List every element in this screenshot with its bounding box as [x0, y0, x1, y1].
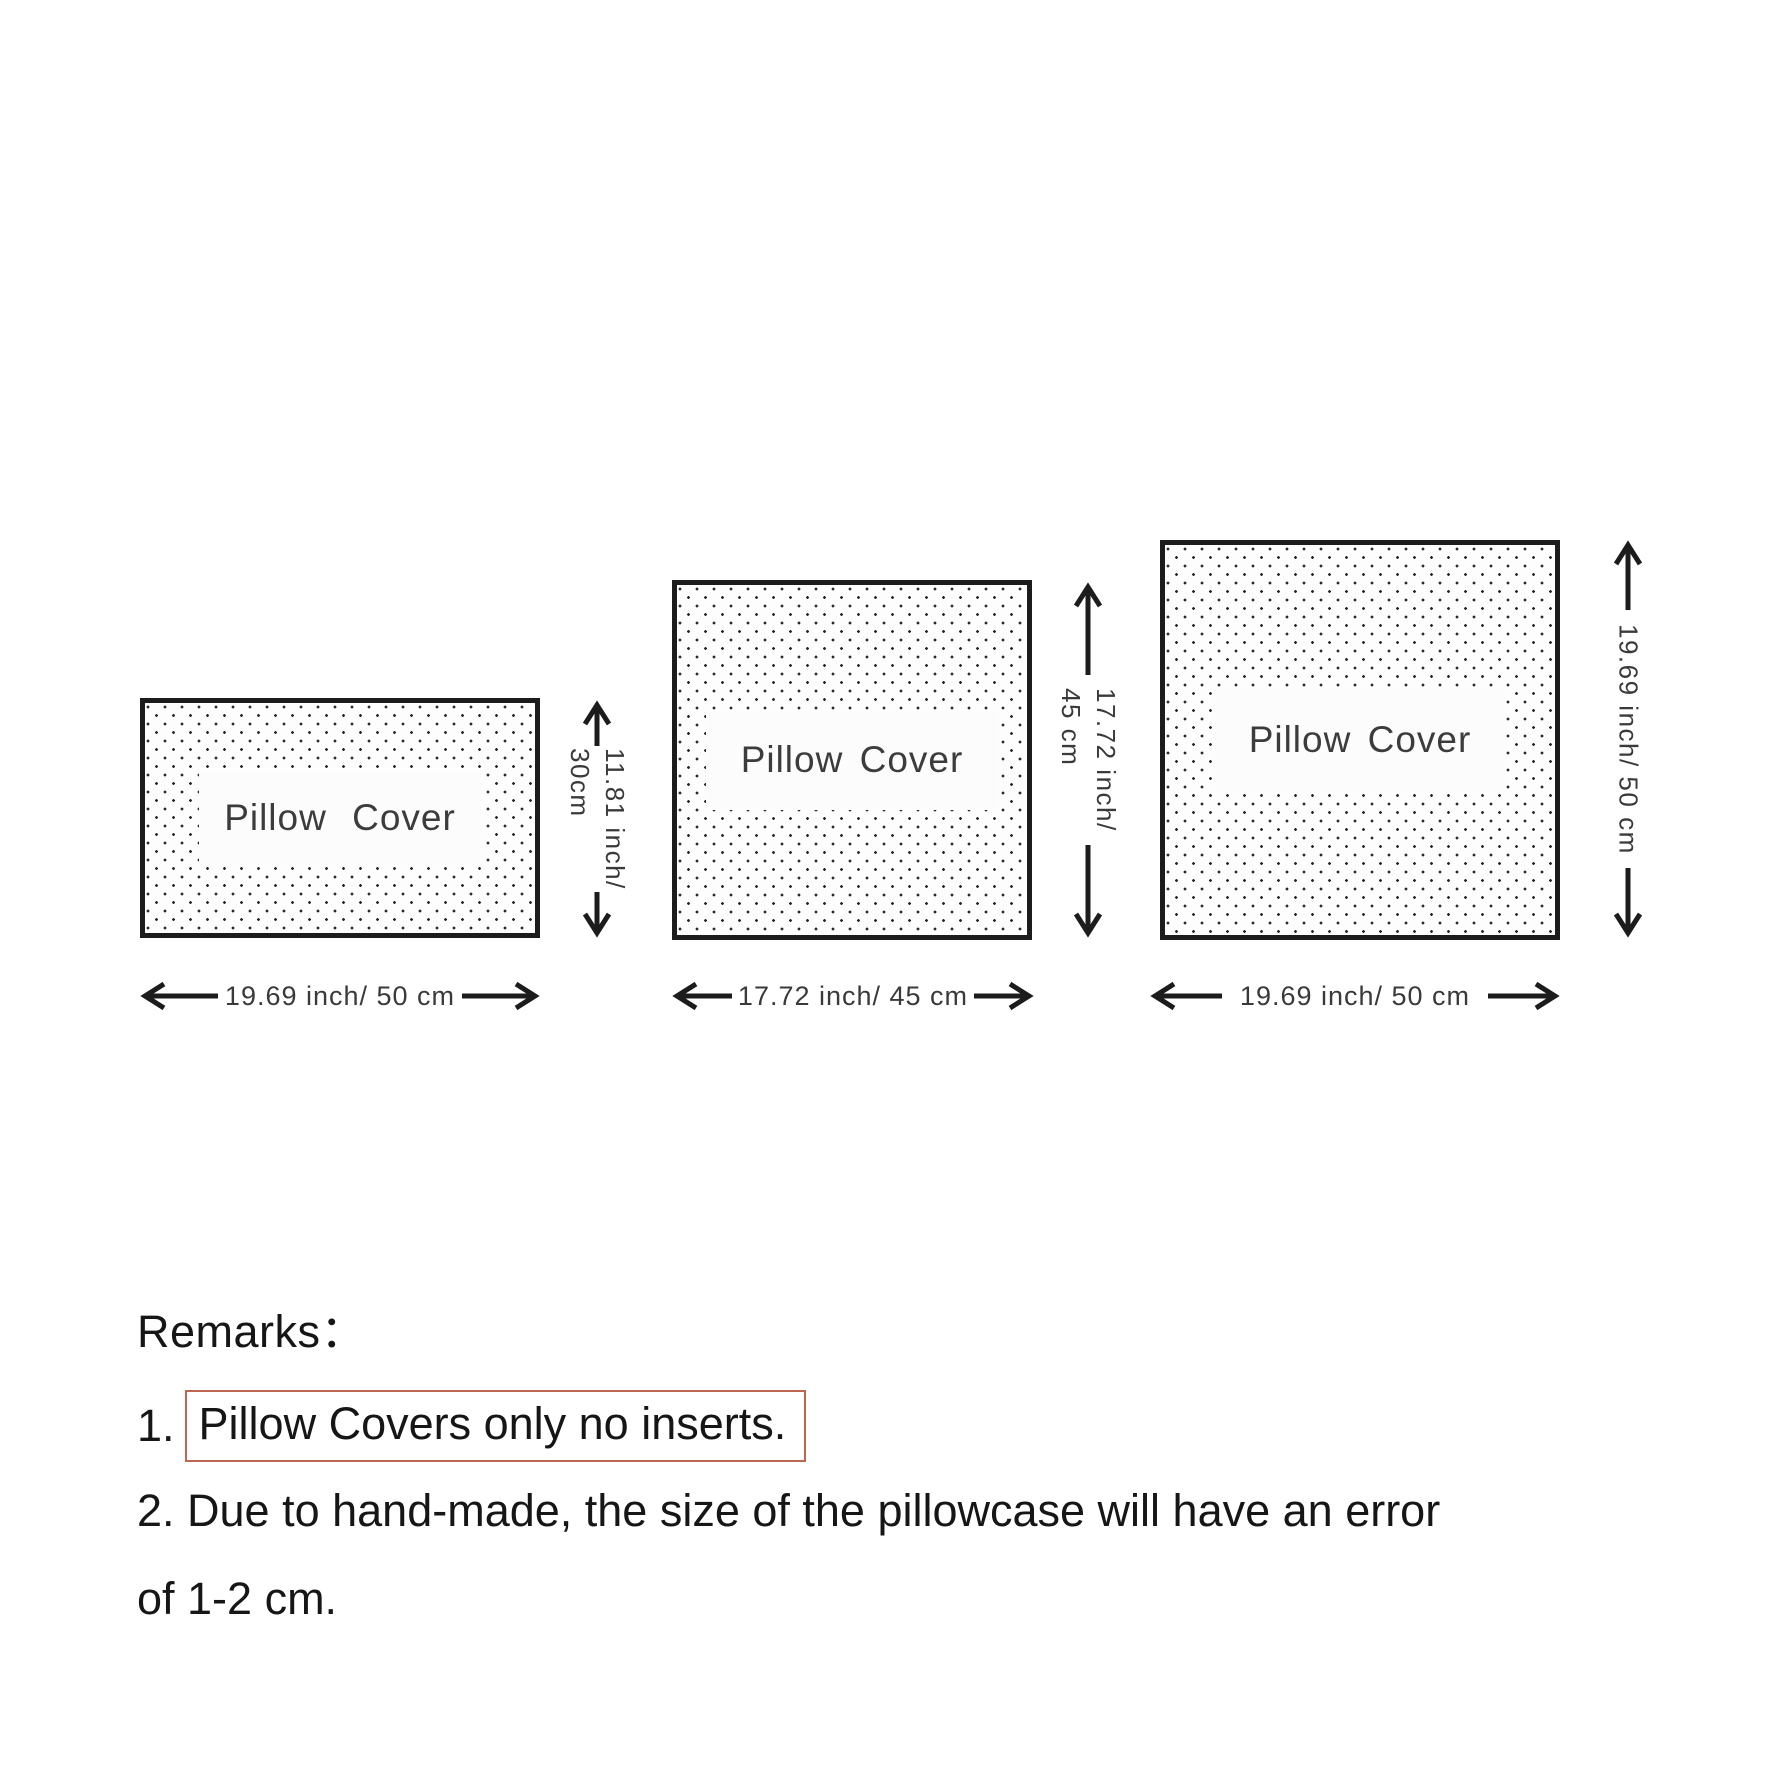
remark-1-boxed-text: Pillow Covers only no inserts.: [185, 1390, 807, 1462]
right-arrow-icon: [972, 979, 1034, 1013]
width-dimension-45x45: 17.72 inch/ 45 cm: [672, 968, 1034, 1024]
pillow-cover-50x50: Pillow Cover: [1160, 540, 1560, 940]
remark-item-1: 1. Pillow Covers only no inserts.: [137, 1390, 806, 1462]
pillow-cover-45x45: Pillow Cover: [672, 580, 1032, 940]
left-arrow-icon: [672, 979, 734, 1013]
width-dimension-50x50: 19.69 inch/ 50 cm: [1150, 968, 1560, 1024]
width-dimension-label: 19.69 inch/ 50 cm: [1240, 981, 1470, 1012]
remarks-title: Remarks：: [137, 1295, 1697, 1360]
height-dimension-45x45: 17.72 inch/ 45 cm: [1043, 582, 1133, 938]
width-dimension-50x30: 19.69 inch/ 50 cm: [140, 968, 540, 1024]
remark-item-2-line-1: 2. Due to hand-made, the size of the pil…: [137, 1485, 1440, 1537]
pillow-size-diagram: Pillow Cover 11.81 inch/ 30cm 19.69 inch…: [0, 0, 1785, 1785]
down-arrow-icon: [1611, 866, 1645, 938]
height-dimension-label: 19.69 inch/ 50 cm: [1610, 624, 1645, 855]
left-arrow-icon: [1150, 979, 1224, 1013]
pillow-cover-label: Pillow Cover: [1214, 690, 1506, 790]
remarks-section: Remarks： 1. Pillow Covers only no insert…: [137, 1295, 1697, 1360]
remark-1-number: 1.: [137, 1400, 175, 1452]
pillow-cover-label: Pillow Cover: [706, 710, 998, 810]
down-arrow-icon: [580, 890, 614, 938]
up-arrow-icon: [1071, 582, 1105, 677]
down-arrow-icon: [1071, 843, 1105, 938]
right-arrow-icon: [1486, 979, 1560, 1013]
height-dimension-50x30: 11.81 inch/ 30cm: [552, 700, 642, 938]
remark-item-2-line-2: of 1-2 cm.: [137, 1573, 337, 1625]
height-dimension-50x50: 19.69 inch/ 50 cm: [1583, 540, 1673, 938]
up-arrow-icon: [580, 700, 614, 748]
right-arrow-icon: [460, 979, 540, 1013]
height-dimension-label: 17.72 inch/ 45 cm: [1053, 688, 1123, 832]
up-arrow-icon: [1611, 540, 1645, 612]
pillow-cover-label: Pillow Cover: [199, 772, 481, 864]
left-arrow-icon: [140, 979, 220, 1013]
height-dimension-label: 11.81 inch/ 30cm: [562, 748, 632, 890]
width-dimension-label: 19.69 inch/ 50 cm: [225, 981, 455, 1012]
pillow-cover-50x30: Pillow Cover: [140, 698, 540, 938]
width-dimension-label: 17.72 inch/ 45 cm: [738, 981, 968, 1012]
